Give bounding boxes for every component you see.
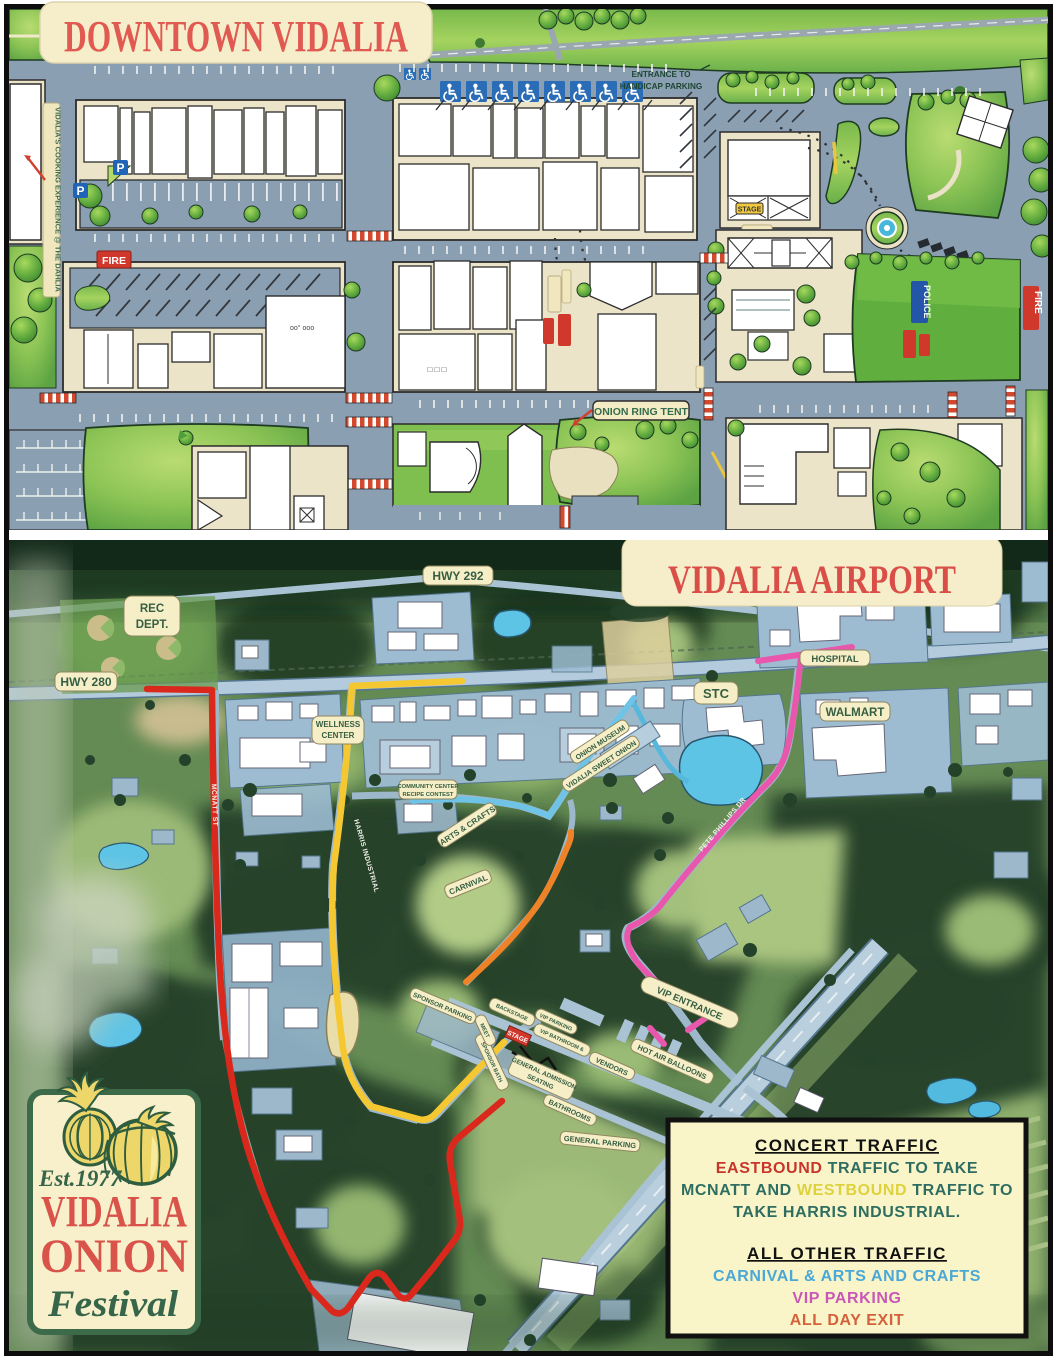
svg-text:EASTBOUND TRAFFIC TO TAKE: EASTBOUND TRAFFIC TO TAKE [716, 1160, 978, 1177]
svg-text:FIRE: FIRE [102, 255, 126, 267]
svg-text:STC: STC [703, 686, 730, 701]
svg-text:FIRE: FIRE [1032, 291, 1043, 314]
svg-text:VIDALIA'S COOKING EXPERIENCE @: VIDALIA'S COOKING EXPERIENCE @ THE DAHLI… [54, 107, 63, 293]
svg-text:ALL OTHER TRAFFIC: ALL OTHER TRAFFIC [747, 1244, 947, 1263]
svg-text:CENTER: CENTER [322, 731, 355, 740]
svg-text:HANDICAP PARKING: HANDICAP PARKING [620, 82, 703, 91]
svg-text:VIDALIA AIRPORT: VIDALIA AIRPORT [668, 557, 956, 602]
svg-text:ALL DAY EXIT: ALL DAY EXIT [790, 1312, 905, 1329]
svg-text:ONION: ONION [40, 1230, 188, 1283]
svg-text:COMMUNITY CENTER: COMMUNITY CENTER [397, 784, 459, 790]
svg-text:REC: REC [140, 603, 164, 615]
svg-text:RECIPE CONTEST: RECIPE CONTEST [403, 792, 454, 798]
svg-text:MCNATT ST: MCNATT ST [210, 784, 218, 827]
svg-text:MCNATT AND WESTBOUND TRAFFIC T: MCNATT AND WESTBOUND TRAFFIC TO [681, 1182, 1013, 1199]
svg-text:ENTRANCE TO: ENTRANCE TO [632, 70, 692, 79]
svg-text:DEPT.: DEPT. [136, 619, 169, 631]
svg-text:P: P [116, 161, 124, 175]
svg-text:WALMART: WALMART [826, 707, 885, 719]
svg-text:DOWNTOWN VIDALIA: DOWNTOWN VIDALIA [64, 12, 408, 61]
svg-text:HWY 280: HWY 280 [60, 675, 111, 689]
svg-text:oo° ooo: oo° ooo [290, 324, 314, 332]
svg-text:TAKE HARRIS INDUSTRIAL.: TAKE HARRIS INDUSTRIAL. [733, 1204, 961, 1221]
svg-text:CONCERT TRAFFIC: CONCERT TRAFFIC [755, 1136, 939, 1155]
svg-text:□ □ □: □ □ □ [428, 365, 447, 374]
svg-text:HWY 292: HWY 292 [432, 569, 483, 583]
svg-text:POLICE: POLICE [922, 285, 932, 319]
svg-text:ONION RING TENT: ONION RING TENT [594, 406, 689, 418]
svg-text:WELLNESS: WELLNESS [316, 720, 361, 729]
svg-text:Festival: Festival [47, 1284, 179, 1325]
svg-text:VIDALIA: VIDALIA [41, 1187, 187, 1236]
svg-text:HOSPITAL: HOSPITAL [811, 654, 859, 665]
svg-text:CARNIVAL & ARTS AND CRAFTS: CARNIVAL & ARTS AND CRAFTS [713, 1268, 981, 1285]
svg-text:VIP PARKING: VIP PARKING [792, 1290, 901, 1307]
svg-text:STAGE: STAGE [738, 207, 762, 214]
svg-text:P: P [76, 184, 84, 198]
